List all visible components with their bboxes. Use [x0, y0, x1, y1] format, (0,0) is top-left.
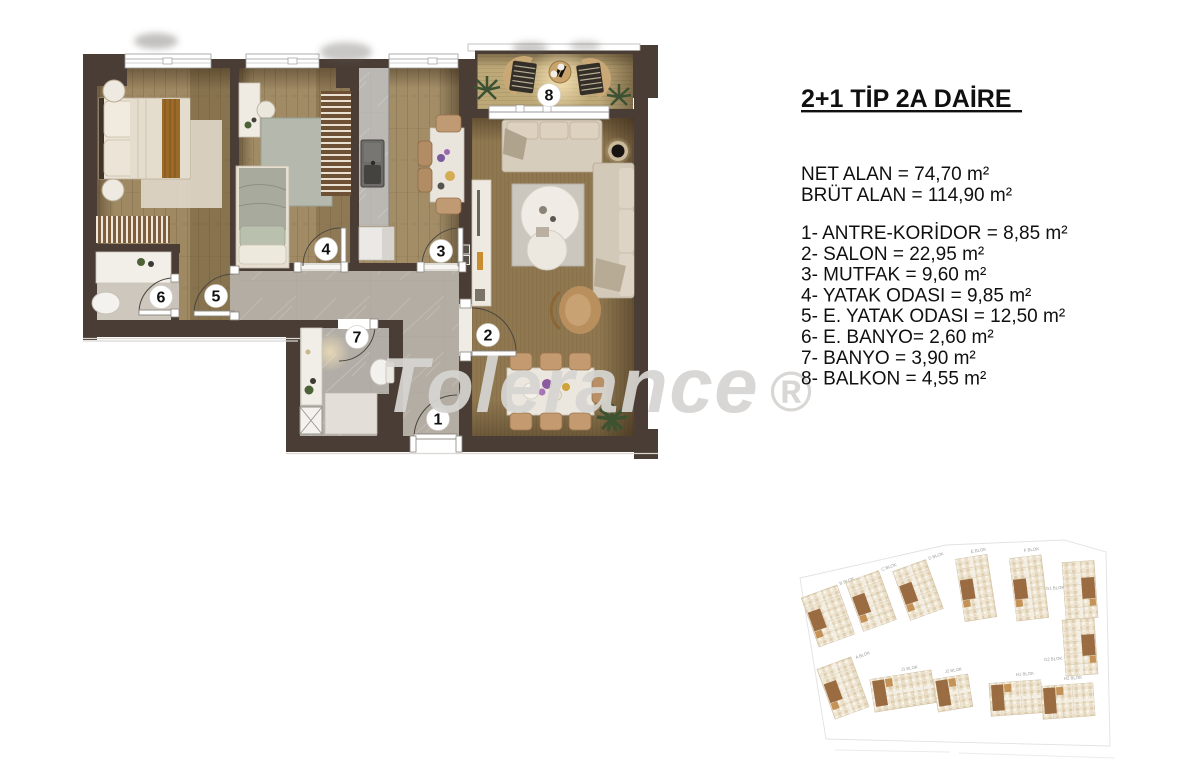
svg-text:E BLOK: E BLOK: [970, 547, 986, 554]
svg-text:6: 6: [157, 290, 166, 307]
svg-text:1- ANTRE-KORİDOR = 8,85 m²: 1- ANTRE-KORİDOR = 8,85 m²: [801, 223, 1068, 244]
svg-text:J2 BLOK: J2 BLOK: [944, 666, 962, 674]
svg-text:C BLOK: C BLOK: [881, 562, 898, 572]
svg-text:3- MUTFAK = 9,60 m²: 3- MUTFAK = 9,60 m²: [801, 265, 986, 286]
svg-text:6- E. BANYO= 2,60 m²: 6- E. BANYO= 2,60 m²: [801, 327, 994, 348]
svg-text:J1 BLOK: J1 BLOK: [900, 664, 918, 672]
svg-text:Tolerance: Tolerance: [380, 341, 759, 429]
svg-text:8: 8: [545, 88, 554, 105]
svg-text:3: 3: [437, 244, 446, 261]
svg-text:8- BALKON = 4,55 m²: 8- BALKON = 4,55 m²: [801, 369, 986, 390]
svg-text:D BLOK: D BLOK: [928, 551, 945, 561]
svg-text:G2 BLOK: G2 BLOK: [1044, 656, 1063, 662]
svg-text:2+1 TİP 2A DAİRE: 2+1 TİP 2A DAİRE: [801, 85, 1012, 113]
svg-text:G1 BLOK: G1 BLOK: [1046, 585, 1065, 591]
svg-text:NET ALAN = 74,70 m²: NET ALAN = 74,70 m²: [801, 164, 989, 185]
svg-text:4- YATAK ODASI = 9,85 m²: 4- YATAK ODASI = 9,85 m²: [801, 285, 1031, 306]
svg-text:5: 5: [212, 289, 221, 306]
svg-text:7: 7: [353, 330, 362, 347]
svg-text:5- E. YATAK ODASI = 12,50 m²: 5- E. YATAK ODASI = 12,50 m²: [801, 306, 1065, 327]
svg-text:4: 4: [322, 242, 331, 259]
svg-text:7- BANYO = 3,90 m²: 7- BANYO = 3,90 m²: [801, 348, 976, 369]
svg-text:A BLOK: A BLOK: [855, 650, 871, 660]
svg-text:F BLOK: F BLOK: [1024, 546, 1040, 553]
svg-text:2- SALON = 22,95 m²: 2- SALON = 22,95 m²: [801, 244, 984, 265]
svg-text:H1 BLOK: H1 BLOK: [1016, 671, 1035, 677]
svg-text:H2 BLOK: H2 BLOK: [1064, 675, 1083, 681]
svg-text:BRÜT ALAN = 114,90 m²: BRÜT ALAN = 114,90 m²: [801, 185, 1012, 206]
